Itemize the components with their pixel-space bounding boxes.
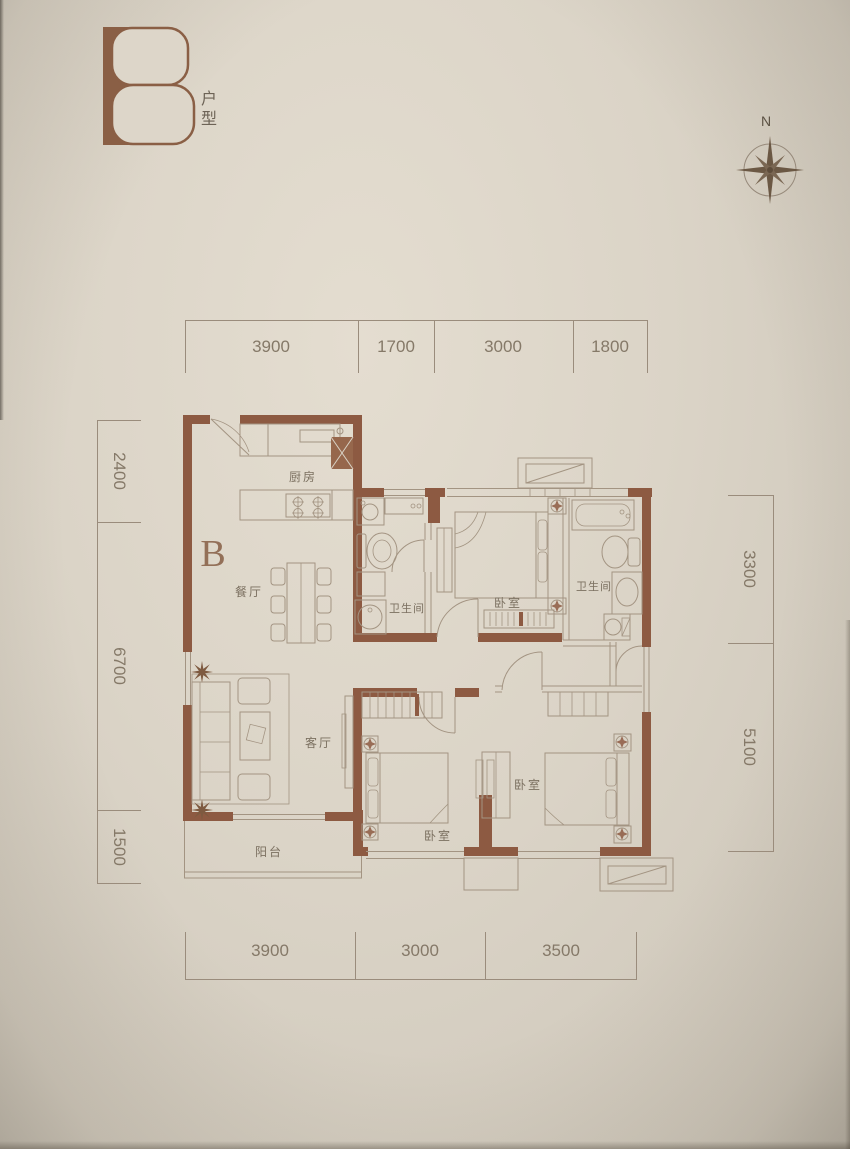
ac-platform-bottom-right	[600, 858, 673, 891]
entry-hall-fixtures	[385, 498, 452, 592]
dim-right-2: 5100	[737, 707, 759, 787]
dining-fixtures	[271, 563, 331, 643]
floorplan-drawing: B 厨房 餐厅 卫生间 卧室 卫生间 客厅 卧室 卧室 阳台	[175, 405, 680, 900]
room-label-bath-second: 卫生间	[576, 579, 612, 593]
bedroom-right-fixtures	[482, 692, 631, 843]
dim-left-1: 2400	[107, 431, 129, 511]
room-label-dining: 餐厅	[235, 584, 263, 599]
logo-caption: 户型	[196, 90, 218, 138]
compass-north-label: N	[761, 113, 771, 129]
room-label-kitchen: 厨房	[289, 469, 317, 484]
dimension-chain-bottom: 3900 3000 3500	[185, 932, 637, 980]
compass-north-icon: N	[726, 106, 818, 210]
bay-window-top	[518, 458, 592, 488]
dim-bottom-3: 3500	[521, 941, 601, 961]
dimension-chain-top: 3900 1700 3000 1800	[185, 320, 648, 373]
dim-left-2: 6700	[107, 626, 129, 706]
photo-edge-right	[845, 620, 850, 1149]
bathroom-second-fixtures	[572, 500, 642, 640]
dimension-chain-left: 2400 6700 1500	[97, 420, 143, 884]
room-label-bedroom-top: 卧室	[494, 595, 522, 610]
room-label-living: 客厅	[305, 735, 333, 750]
photo-edge-bottom	[0, 1141, 850, 1149]
plan-unit-letter: B	[200, 533, 225, 575]
bedroom-middle-fixtures	[362, 692, 494, 840]
room-label-bedroom-right: 卧室	[514, 777, 542, 792]
dim-top-3: 3000	[463, 337, 543, 357]
windows	[186, 489, 650, 859]
dim-bottom-2: 3000	[380, 941, 460, 961]
floorplan-page: 户型 N 3900 1700 3000 1800 3900 3000 3500	[0, 0, 850, 1149]
walls	[183, 415, 652, 856]
dim-right-1: 3300	[737, 529, 759, 609]
dimension-chain-right: 3300 5100	[728, 495, 774, 852]
dim-top-1: 3900	[231, 337, 311, 357]
dim-bottom-1: 3900	[230, 941, 310, 961]
partitions	[425, 498, 642, 692]
dim-top-4: 1800	[570, 337, 650, 357]
room-label-bedroom-middle: 卧室	[424, 828, 452, 843]
photo-edge-left	[0, 0, 4, 420]
dim-top-2: 1700	[356, 337, 436, 357]
room-label-bath-main: 卫生间	[389, 601, 425, 615]
dim-left-3: 1500	[107, 807, 129, 887]
ac-platform-bottom-left	[464, 858, 518, 890]
room-label-balcony: 阳台	[255, 844, 283, 859]
